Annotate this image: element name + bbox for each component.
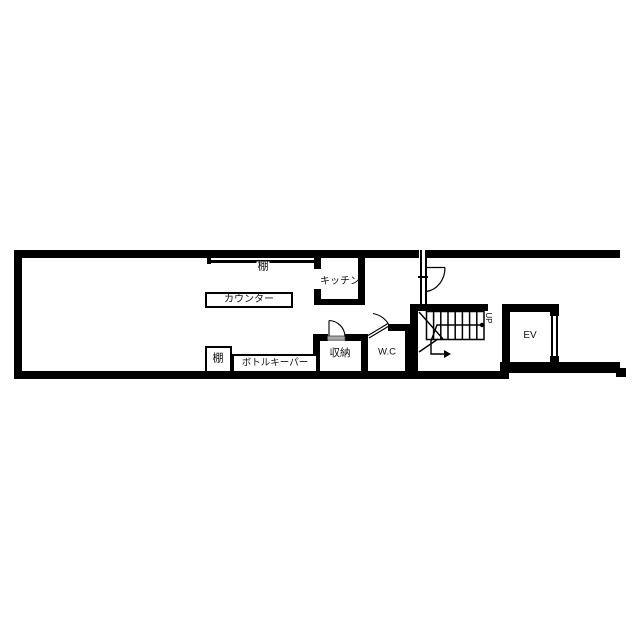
- partition-tick: [418, 276, 428, 278]
- wall-left: [14, 250, 22, 379]
- partition-line: [420, 250, 422, 306]
- top-shelf-label: 棚: [257, 262, 270, 273]
- storage-wall-top-stub: [313, 334, 328, 341]
- partition-door: [426, 268, 445, 292]
- storage-label: 収納: [330, 348, 351, 359]
- storage-door: [328, 321, 346, 341]
- elevator-wall-left: [502, 304, 510, 372]
- wall-top-right-segment: [427, 250, 620, 258]
- stair-direction-arrow: [431, 323, 484, 358]
- stair-treads: [427, 312, 485, 340]
- stair-up-label: UP: [484, 312, 492, 323]
- elevator-wall-right-upper: [550, 304, 559, 316]
- bottle-keeper-label: ボトルキーパー: [242, 358, 308, 368]
- elevator-label: EV: [523, 331, 536, 341]
- counter-label: カウンター: [224, 295, 274, 305]
- wc-door: [368, 314, 389, 339]
- stair-wall-left: [410, 304, 418, 371]
- stair-break-lines: [419, 312, 443, 352]
- kitchen-wall-bottom: [314, 299, 362, 305]
- partition-line: [425, 250, 427, 306]
- elevator-door-line: [551, 316, 553, 356]
- storage-wc-shared-wall: [361, 334, 368, 371]
- wall-bottom-right-step: [616, 368, 626, 377]
- wall-top-left-segment: [14, 250, 419, 258]
- floor-plan: 棚 カウンター キッチン 棚 ボトルキーパー 収納 W.C EV UP: [0, 0, 639, 640]
- bottom-shelf-label: 棚: [213, 354, 224, 365]
- wc-label: W.C: [378, 347, 396, 357]
- elevator-door-line: [556, 316, 558, 356]
- elevator-wall-right-lower: [550, 356, 559, 372]
- symbols-overlay: [0, 0, 639, 640]
- wall-bottom-right-segment: [500, 362, 620, 373]
- kitchen-label: キッチン: [320, 277, 360, 287]
